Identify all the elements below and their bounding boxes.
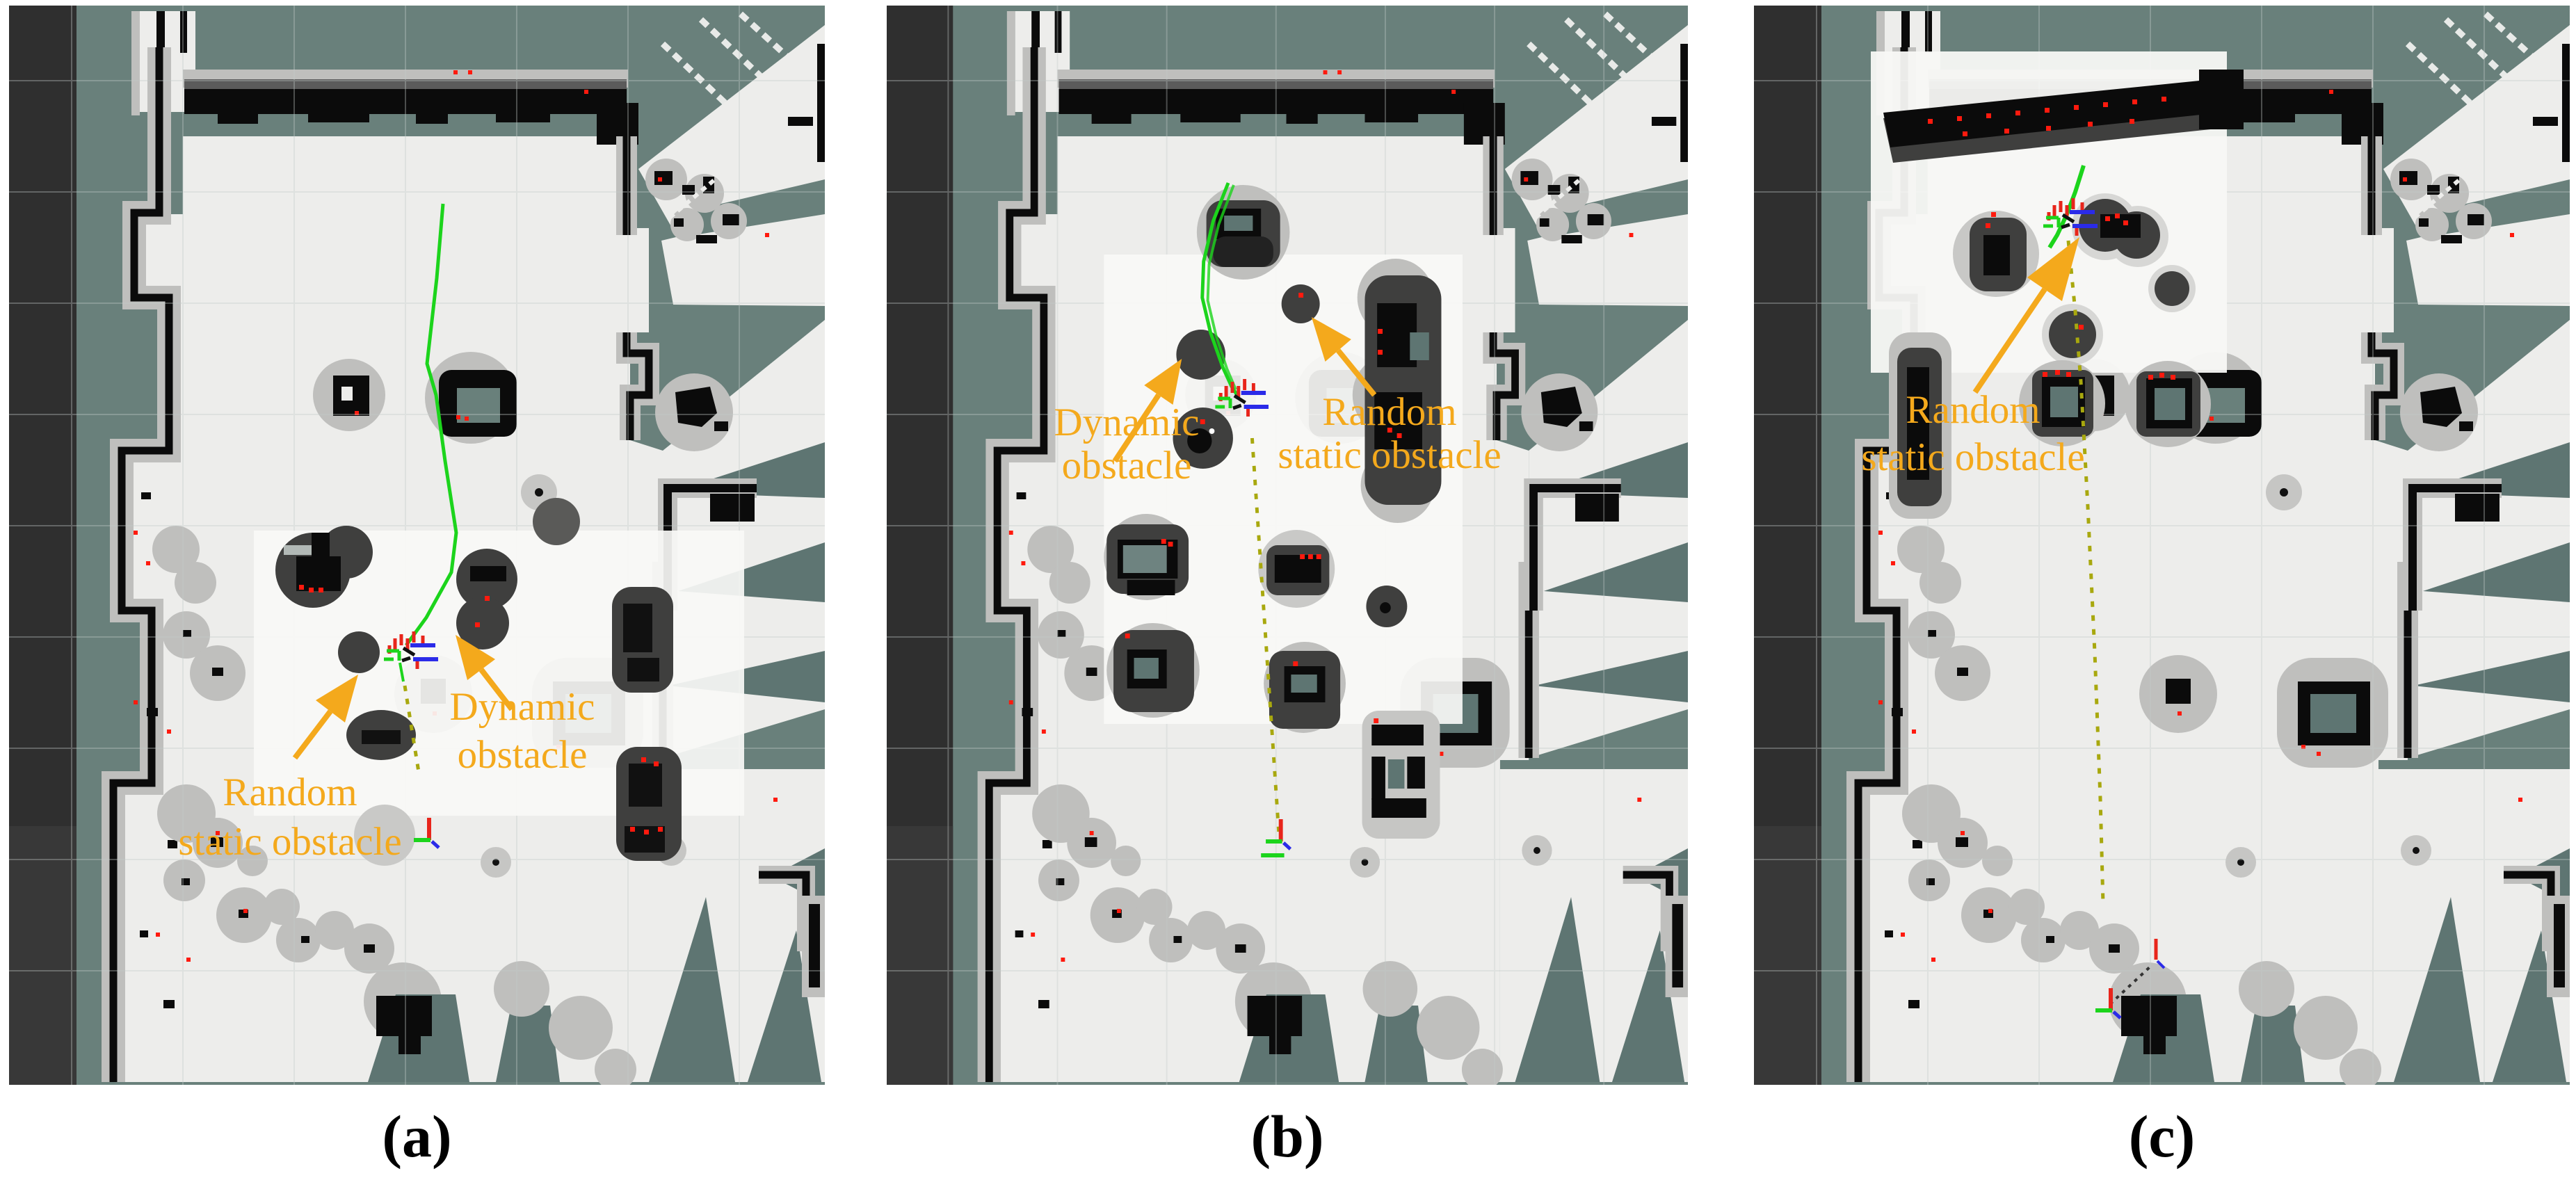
subfigure-caption-a: (a) <box>9 1097 825 1178</box>
figure-three-panel-simulation: Random static obstacle Dynamic obstacle … <box>0 0 2576 1178</box>
occupancy-grid-map-c <box>1754 6 2570 1085</box>
rviz-map-panel-a: Random static obstacle Dynamic obstacle <box>9 6 825 1085</box>
subfigure-caption-c: (c) <box>1754 1097 2570 1178</box>
occupancy-grid-map-b <box>887 6 1688 1085</box>
occupancy-grid-map-a <box>9 6 825 1085</box>
rviz-map-panel-c: Random static obstacle <box>1754 6 2570 1085</box>
subfigure-caption-b: (b) <box>887 1097 1688 1178</box>
rviz-map-panel-b: Dynamic obstacle Random static obstacle <box>887 6 1688 1085</box>
